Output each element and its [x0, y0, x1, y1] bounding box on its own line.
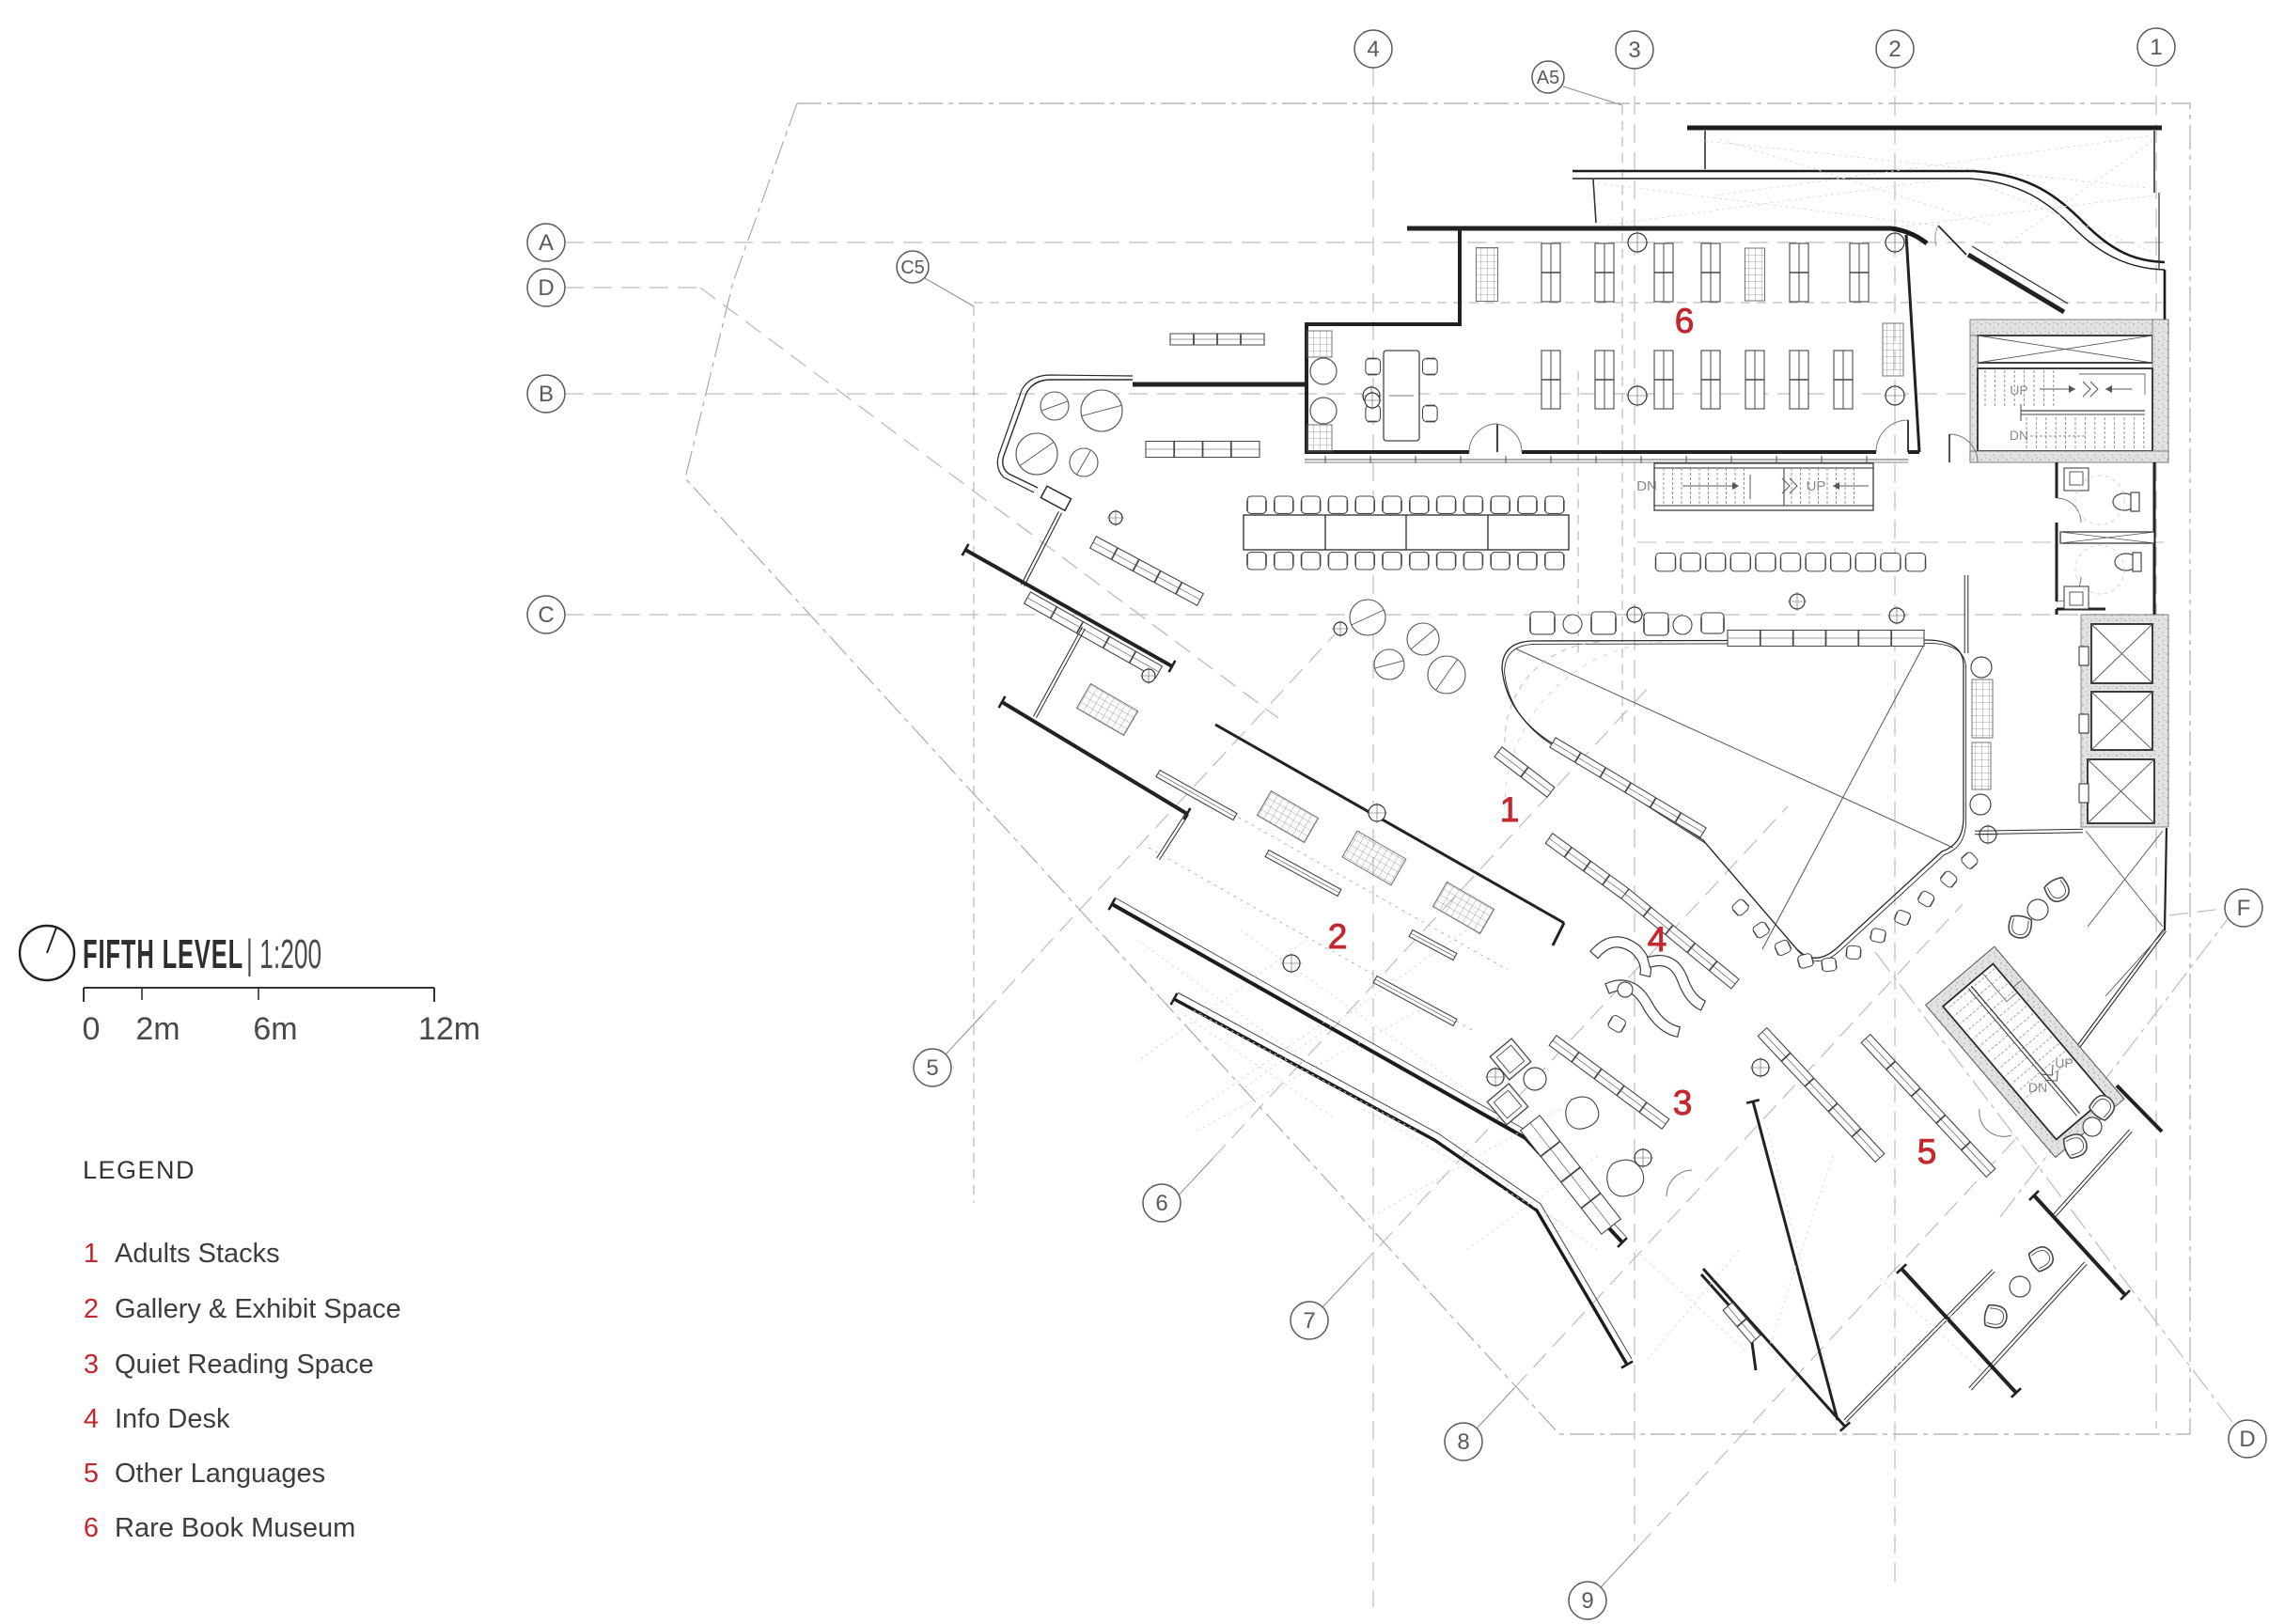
svg-text:DN: DN: [2028, 1080, 2047, 1095]
svg-text:1: 1: [2150, 35, 2162, 60]
svg-text:4: 4: [84, 1404, 99, 1434]
svg-text:4: 4: [1648, 920, 1667, 959]
svg-text:Rare Book Museum: Rare Book Museum: [115, 1513, 355, 1543]
svg-text:F: F: [2237, 896, 2251, 921]
svg-text:C: C: [538, 602, 554, 628]
svg-text:5: 5: [926, 1055, 938, 1081]
svg-text:C5: C5: [900, 258, 925, 278]
svg-text:6: 6: [1675, 302, 1695, 340]
svg-text:Other Languages: Other Languages: [115, 1459, 325, 1489]
svg-text:0: 0: [83, 1011, 101, 1047]
svg-text:D: D: [2239, 1427, 2255, 1452]
svg-text:FIFTH LEVEL: FIFTH LEVEL: [83, 930, 243, 977]
svg-text:5: 5: [1917, 1132, 1937, 1171]
svg-text:2: 2: [1888, 37, 1901, 62]
svg-text:Info Desk: Info Desk: [115, 1404, 230, 1434]
svg-text:Gallery & Exhibit Space: Gallery & Exhibit Space: [115, 1294, 401, 1324]
svg-text:6: 6: [1155, 1191, 1167, 1216]
svg-text:Adults Stacks: Adults Stacks: [115, 1239, 280, 1269]
svg-text:A5: A5: [1537, 68, 1559, 88]
svg-text:Quiet Reading Space: Quiet Reading Space: [115, 1350, 374, 1380]
svg-text:6m: 6m: [253, 1011, 297, 1047]
svg-text:5: 5: [84, 1459, 99, 1489]
svg-text:UP: UP: [1807, 478, 1826, 494]
svg-text:4: 4: [1367, 37, 1379, 62]
svg-text:12m: 12m: [418, 1011, 480, 1047]
svg-text:6: 6: [84, 1513, 99, 1543]
svg-text:3: 3: [84, 1350, 99, 1380]
svg-text:UP: UP: [2055, 1055, 2073, 1070]
svg-text:3: 3: [1628, 38, 1640, 63]
svg-text:1: 1: [84, 1239, 99, 1269]
svg-text:A: A: [539, 230, 554, 256]
svg-text:8: 8: [1457, 1429, 1469, 1455]
svg-text:1: 1: [1500, 790, 1520, 829]
svg-text:9: 9: [1581, 1588, 1593, 1614]
svg-text:| 1:200: | 1:200: [246, 930, 321, 977]
svg-text:UP: UP: [2010, 383, 2027, 398]
svg-text:DN: DN: [1636, 478, 1657, 494]
svg-text:DN: DN: [2010, 428, 2028, 443]
svg-text:LEGEND: LEGEND: [83, 1156, 196, 1184]
svg-text:2: 2: [1328, 917, 1348, 956]
svg-text:2: 2: [84, 1294, 99, 1324]
svg-text:2m: 2m: [135, 1011, 180, 1047]
svg-text:3: 3: [1673, 1084, 1693, 1122]
svg-text:D: D: [538, 275, 554, 301]
svg-text:B: B: [539, 382, 554, 407]
svg-text:7: 7: [1303, 1308, 1315, 1334]
